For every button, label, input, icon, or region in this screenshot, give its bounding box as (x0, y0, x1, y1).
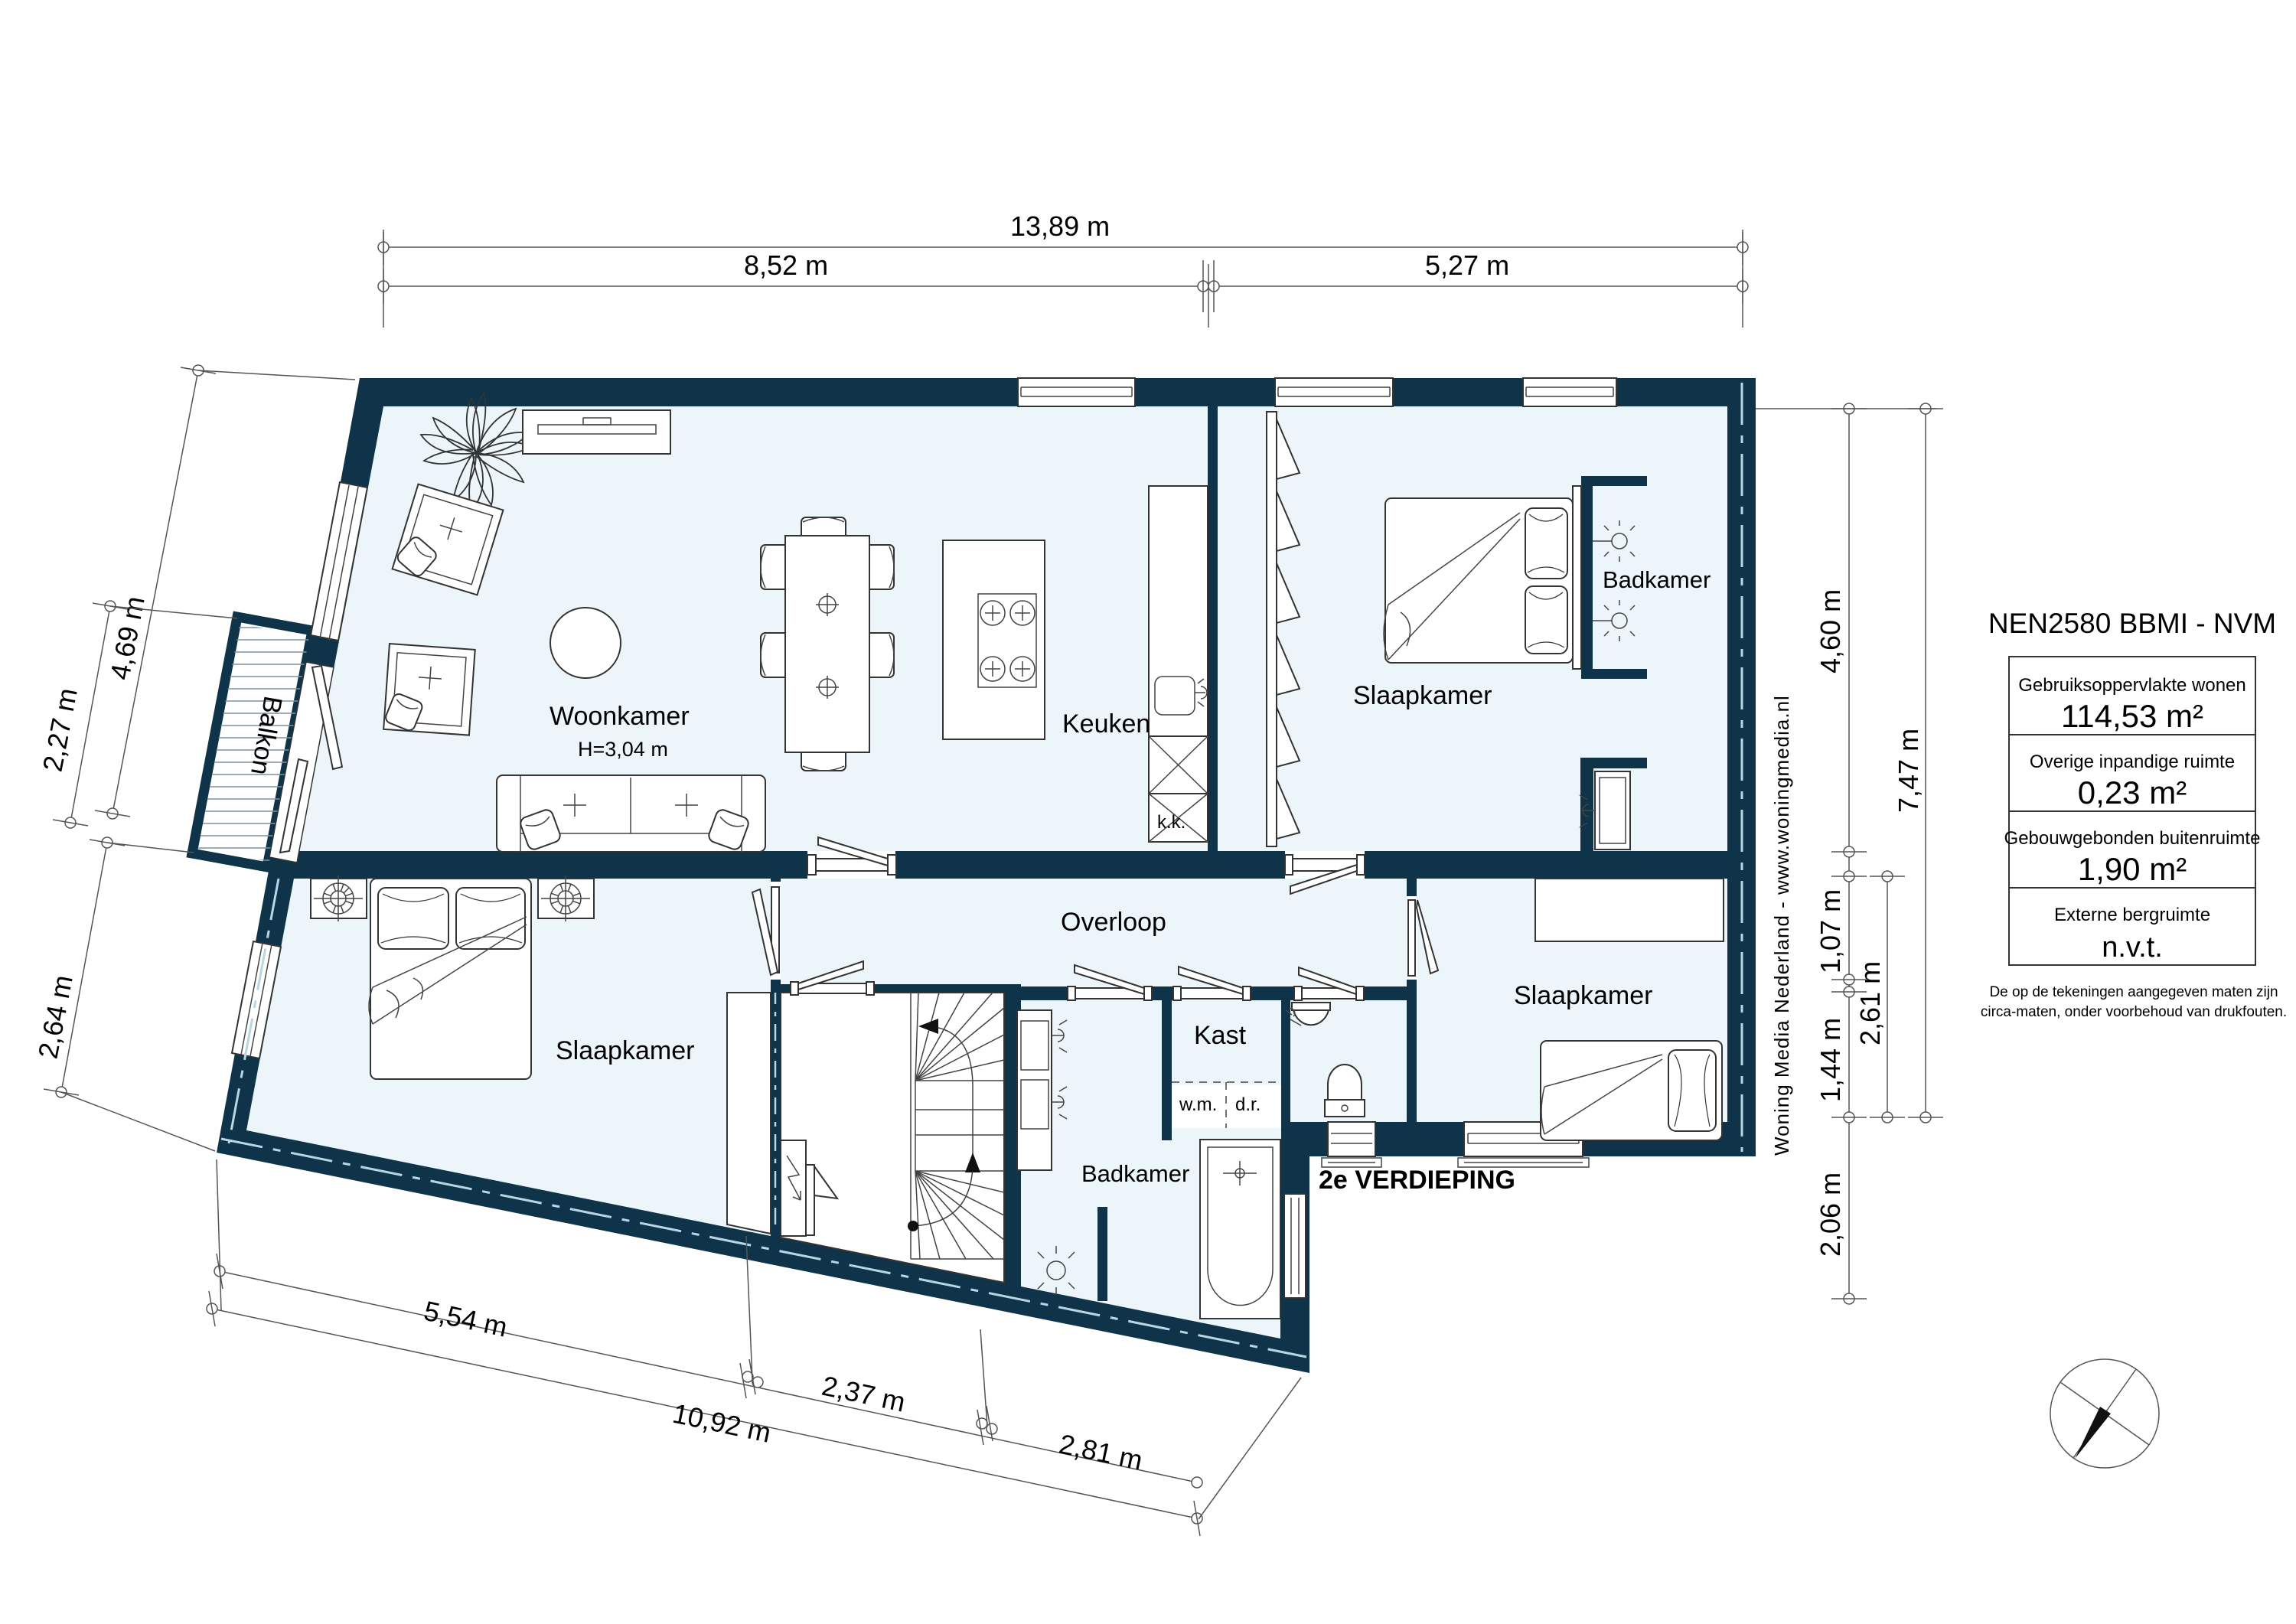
svg-text:circa-maten, onder voorbehoud: circa-maten, onder voorbehoud van drukfo… (1981, 1004, 2287, 1020)
svg-text:NEN2580 BBMI - NVM: NEN2580 BBMI - NVM (1988, 608, 2276, 639)
svg-text:De op de tekeningen aangegeven: De op de tekeningen aangegeven maten zij… (1989, 984, 2278, 1000)
svg-text:114,53 m²: 114,53 m² (2061, 698, 2203, 734)
svg-text:Overloop: Overloop (1061, 908, 1166, 937)
svg-text:Gebouwgebonden buitenruimte: Gebouwgebonden buitenruimte (2004, 828, 2261, 849)
svg-text:Externe bergruimte: Externe bergruimte (2054, 905, 2210, 925)
svg-text:1,90 m²: 1,90 m² (2078, 851, 2187, 887)
svg-text:H=3,04 m: H=3,04 m (578, 738, 668, 761)
svg-text:Overige inpandige ruimte: Overige inpandige ruimte (2030, 752, 2235, 772)
svg-text:Gebruiksoppervlakte wonen: Gebruiksoppervlakte wonen (2018, 675, 2246, 696)
svg-text:13,89 m: 13,89 m (1010, 210, 1110, 242)
svg-text:Kast: Kast (1194, 1021, 1247, 1050)
svg-text:4,60 m: 4,60 m (1815, 589, 1846, 673)
svg-text:0,23 m²: 0,23 m² (2078, 774, 2187, 810)
svg-text:Woonkamer: Woonkamer (550, 702, 690, 731)
svg-text:Slaapkamer: Slaapkamer (1514, 981, 1652, 1010)
svg-text:Badkamer: Badkamer (1603, 566, 1711, 593)
svg-text:n.v.t.: n.v.t. (2102, 931, 2163, 964)
svg-text:Keuken: Keuken (1062, 709, 1150, 739)
svg-text:1,07 m: 1,07 m (1815, 889, 1846, 973)
svg-text:Slaapkamer: Slaapkamer (556, 1036, 694, 1065)
svg-text:k.k.: k.k. (1157, 812, 1186, 833)
svg-text:7,47 m: 7,47 m (1893, 729, 1924, 813)
svg-text:2,06 m: 2,06 m (1815, 1172, 1846, 1257)
svg-text:2,61 m: 2,61 m (1854, 961, 1886, 1045)
svg-text:2e VERDIEPING: 2e VERDIEPING (1319, 1166, 1515, 1195)
svg-text:5,27 m: 5,27 m (1425, 249, 1509, 281)
svg-text:Badkamer: Badkamer (1081, 1160, 1189, 1187)
svg-text:Woning Media Nederland - www.w: Woning Media Nederland - www.woningmedia… (1770, 695, 1793, 1156)
svg-text:d.r.: d.r. (1235, 1094, 1261, 1115)
svg-text:1,44 m: 1,44 m (1815, 1018, 1846, 1102)
svg-text:Slaapkamer: Slaapkamer (1353, 681, 1492, 710)
svg-text:8,52 m: 8,52 m (744, 249, 828, 281)
svg-text:w.m.: w.m. (1179, 1094, 1217, 1115)
